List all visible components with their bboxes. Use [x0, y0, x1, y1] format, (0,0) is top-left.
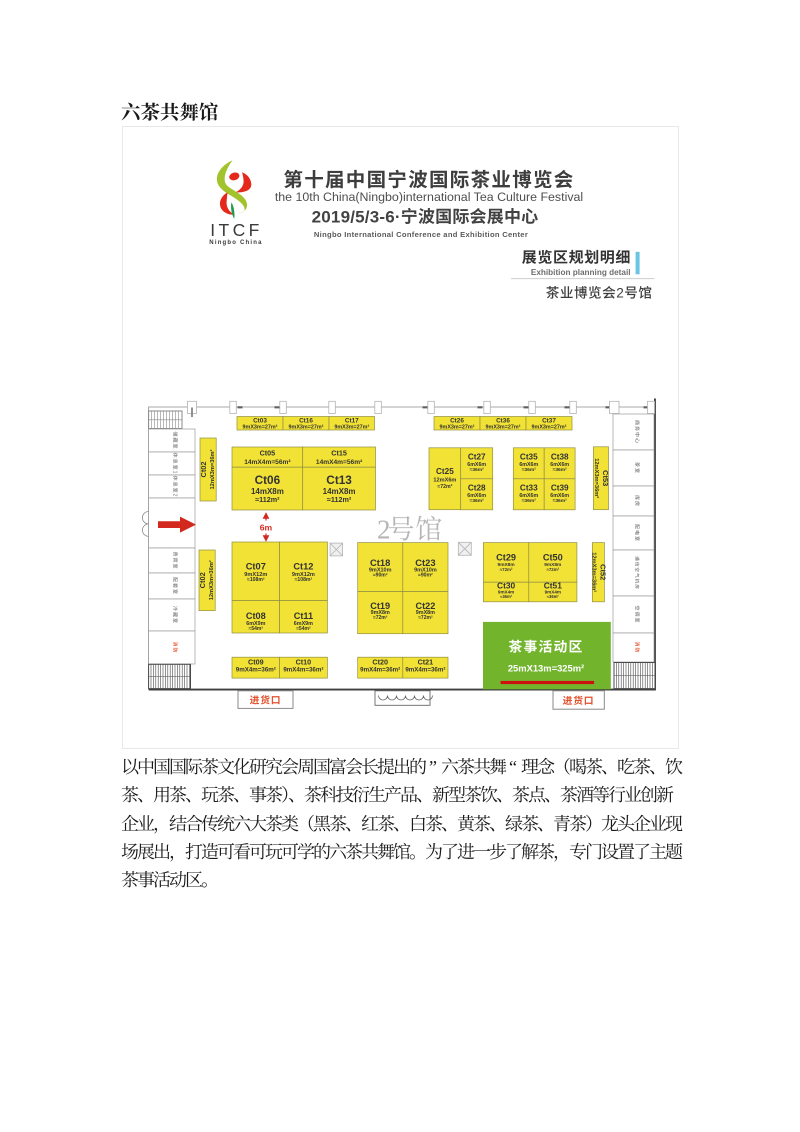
svg-text:Ningbo China: Ningbo China — [209, 240, 262, 246]
svg-text:12mX3m=36m²: 12mX3m=36m² — [591, 552, 598, 592]
svg-text:Ct52: Ct52 — [599, 564, 608, 580]
svg-text:≈54m²: ≈54m² — [249, 626, 264, 632]
svg-text:≈90m²: ≈90m² — [373, 573, 388, 579]
svg-text:the 10th China(Ningbo)internat: the 10th China(Ningbo)international Tea … — [275, 190, 583, 204]
svg-text:≈36m²: ≈36m² — [500, 594, 513, 599]
svg-text:≈108m²: ≈108m² — [295, 577, 313, 583]
svg-text:通信空气机房: 通信空气机房 — [634, 556, 639, 590]
svg-text:9mX3m=27m²: 9mX3m=27m² — [334, 425, 369, 431]
svg-text:12mX3m=36m²: 12mX3m=36m² — [209, 449, 216, 489]
svg-text:贵宾室: 贵宾室 — [172, 551, 179, 569]
svg-text:≈36m²: ≈36m² — [547, 594, 560, 599]
svg-text:冷藏室: 冷藏室 — [172, 606, 179, 624]
svg-text:9mX3m=27m²: 9mX3m=27m² — [486, 425, 521, 431]
svg-text:进货口: 进货口 — [563, 695, 595, 707]
svg-text:9mX3m=27m²: 9mX3m=27m² — [440, 425, 475, 431]
svg-text:Ct27: Ct27 — [468, 453, 486, 462]
svg-text:12mX3m=36m²: 12mX3m=36m² — [208, 560, 215, 600]
svg-text:Ct39: Ct39 — [551, 484, 569, 493]
svg-text:≈54m²: ≈54m² — [296, 626, 311, 632]
svg-text:茶室: 茶室 — [633, 462, 640, 474]
svg-text:≈36m²: ≈36m² — [470, 467, 484, 473]
svg-text:休息室1: 休息室1 — [172, 453, 179, 475]
svg-text:9mX3m=27m²: 9mX3m=27m² — [289, 425, 324, 431]
svg-text:Ct10: Ct10 — [296, 657, 312, 666]
svg-text:Ct11: Ct11 — [294, 611, 313, 621]
svg-text:Ct06: Ct06 — [255, 473, 281, 487]
svg-text:Ct35: Ct35 — [520, 453, 538, 462]
svg-text:14mX4m=56m²: 14mX4m=56m² — [244, 459, 291, 466]
svg-text:9mX3m=27m²: 9mX3m=27m² — [243, 425, 278, 431]
svg-text:2019/5/3-6·宁波国际会展中心: 2019/5/3-6·宁波国际会展中心 — [312, 207, 539, 226]
svg-text:配电室: 配电室 — [633, 524, 640, 542]
svg-text:Ct02: Ct02 — [199, 461, 208, 477]
svg-text:第十届中国宁波国际茶业博览会: 第十届中国宁波国际茶业博览会 — [283, 170, 574, 192]
svg-text:商务中心: 商务中心 — [633, 420, 640, 444]
svg-text:≈90m²: ≈90m² — [418, 573, 433, 579]
svg-text:Ct13: Ct13 — [326, 473, 352, 487]
svg-text:12mX3m=36m²: 12mX3m=36m² — [593, 458, 600, 498]
svg-text:Ct50: Ct50 — [543, 553, 563, 563]
svg-text:Ct33: Ct33 — [520, 484, 538, 493]
svg-text:9mX4m=36m²: 9mX4m=36m² — [405, 667, 445, 674]
svg-text:休息室2: 休息室2 — [172, 476, 179, 498]
svg-text:Ct02: Ct02 — [198, 572, 207, 588]
svg-text:库房: 库房 — [633, 495, 640, 507]
svg-text:≈36m²: ≈36m² — [522, 498, 536, 504]
svg-text:≈72m²: ≈72m² — [373, 615, 388, 621]
svg-text:2号 馆: 2号 馆 — [377, 515, 442, 545]
svg-text:≈72m²: ≈72m² — [437, 484, 452, 490]
svg-text:≈36m²: ≈36m² — [470, 498, 484, 504]
svg-text:≈112m²: ≈112m² — [255, 495, 280, 504]
svg-text:配套室: 配套室 — [172, 577, 179, 595]
svg-text:≈108m²: ≈108m² — [247, 577, 265, 583]
svg-text:展览区规划明细: 展览区规划明细 — [522, 250, 631, 267]
svg-text:空调室: 空调室 — [633, 605, 640, 623]
svg-text:Exhibition planning detail: Exhibition planning detail — [531, 268, 631, 277]
svg-text:9mX4m=36m²: 9mX4m=36m² — [236, 667, 276, 674]
svg-text:≈36m²: ≈36m² — [522, 467, 536, 473]
svg-text:12mX6m: 12mX6m — [433, 478, 456, 484]
svg-text:14mX4m=56m²: 14mX4m=56m² — [316, 459, 363, 466]
svg-text:ITCF: ITCF — [210, 220, 262, 240]
svg-text:消防: 消防 — [172, 641, 179, 653]
svg-text:消防: 消防 — [633, 641, 640, 653]
svg-text:25mX13m=325m²: 25mX13m=325m² — [508, 663, 584, 674]
svg-text:Ct29: Ct29 — [496, 553, 516, 563]
svg-text:≈36m²: ≈36m² — [553, 467, 567, 473]
svg-text:6m: 6m — [260, 523, 273, 533]
svg-text:茶业博览会2号馆: 茶业博览会2号馆 — [546, 286, 653, 301]
svg-text:≈112m²: ≈112m² — [327, 495, 352, 504]
svg-text:Ct15: Ct15 — [331, 449, 347, 458]
svg-text:茶事活动区: 茶事活动区 — [509, 640, 584, 655]
svg-text:Ningbo International Conferenc: Ningbo International Conference and Exhi… — [314, 230, 528, 239]
svg-text:≈36m²: ≈36m² — [553, 498, 567, 504]
svg-text:进货口: 进货口 — [250, 695, 282, 707]
svg-text:Ct53: Ct53 — [601, 470, 610, 486]
svg-text:Ct28: Ct28 — [468, 484, 486, 493]
svg-text:Ct07: Ct07 — [246, 562, 266, 572]
svg-text:储藏室: 储藏室 — [172, 431, 179, 449]
svg-text:≈72m²: ≈72m² — [546, 567, 559, 572]
svg-text:≈72m²: ≈72m² — [500, 567, 513, 572]
svg-text:9mX4m=36m²: 9mX4m=36m² — [360, 667, 400, 674]
svg-text:Ct12: Ct12 — [293, 562, 313, 572]
svg-text:Ct25: Ct25 — [436, 467, 454, 476]
svg-text:9mX4m=36m²: 9mX4m=36m² — [283, 667, 323, 674]
svg-text:9mX3m=27m²: 9mX3m=27m² — [532, 425, 567, 431]
svg-text:Ct21: Ct21 — [418, 657, 434, 666]
svg-text:Ct09: Ct09 — [248, 657, 264, 666]
svg-text:≈72m²: ≈72m² — [418, 615, 433, 621]
svg-text:Ct38: Ct38 — [551, 453, 569, 462]
svg-text:Ct20: Ct20 — [372, 657, 388, 666]
svg-text:Ct05: Ct05 — [260, 449, 276, 458]
svg-text:Ct08: Ct08 — [246, 611, 266, 621]
